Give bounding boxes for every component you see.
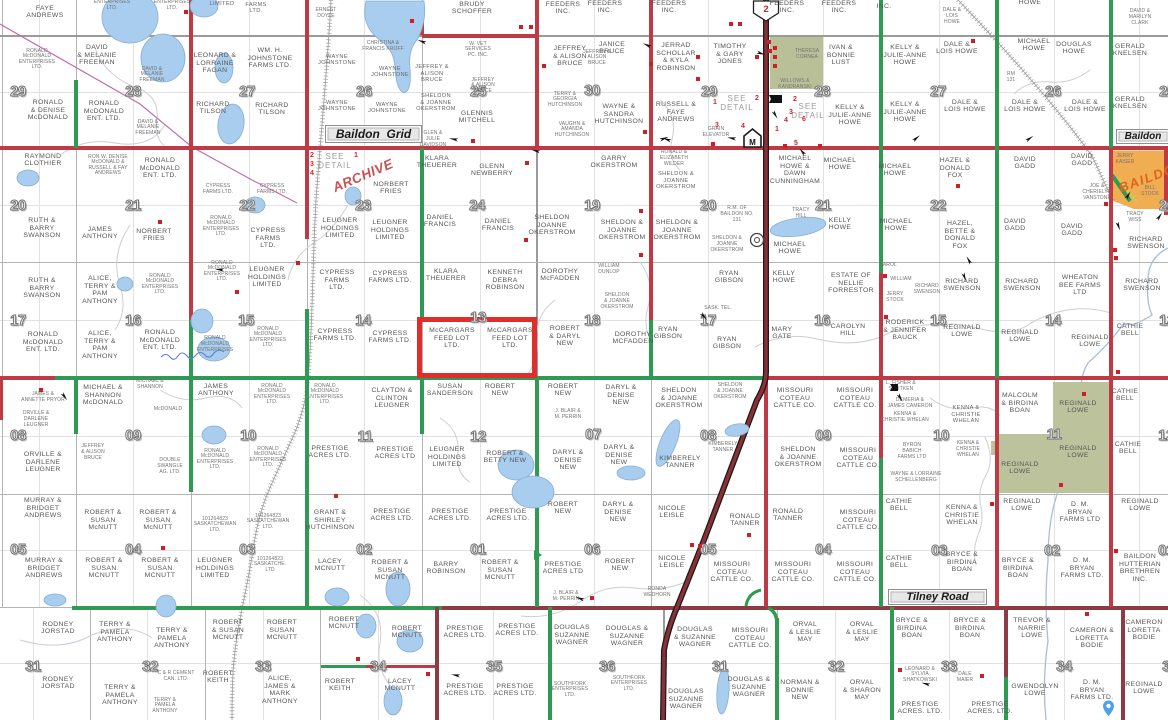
svg-text:M: M: [749, 138, 756, 147]
